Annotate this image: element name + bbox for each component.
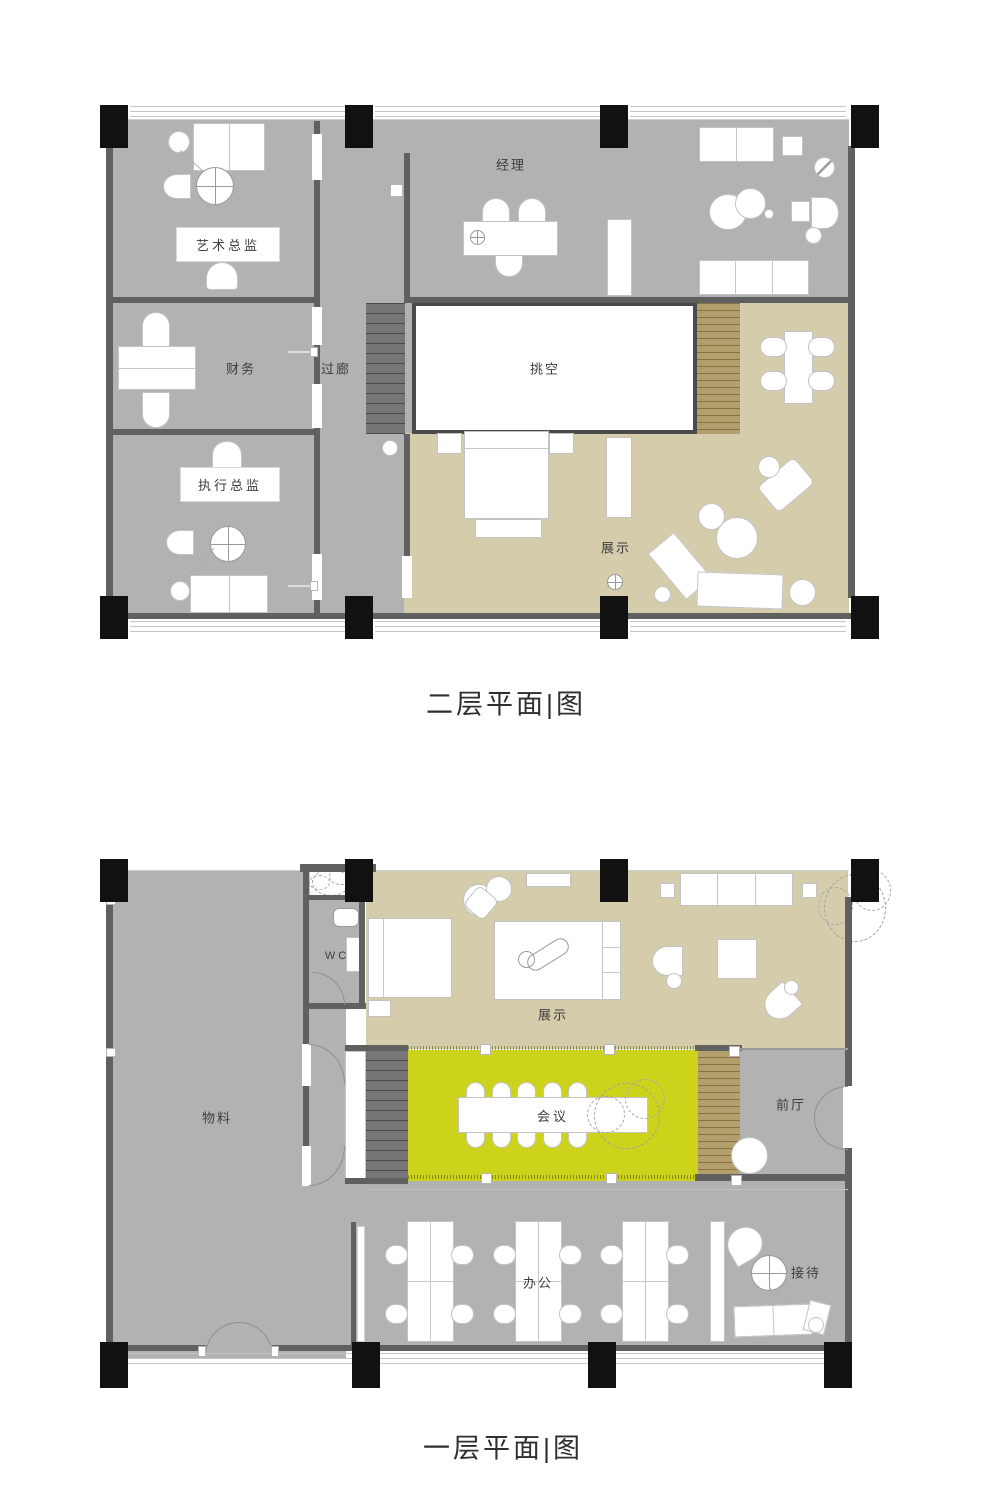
column (345, 859, 373, 902)
bench (526, 873, 571, 887)
stool (784, 980, 799, 995)
side-table (660, 883, 675, 898)
floor-plan-sheet: 艺术总监 财务 过廊 经理 挑空 执行总监 展示 二层平面|图 (0, 0, 1000, 1500)
room-label-front-hall: 前厅 (776, 1095, 806, 1114)
wall-segment (345, 1045, 408, 1051)
chair (451, 1304, 474, 1324)
chair (559, 1304, 582, 1324)
chair (493, 1304, 516, 1324)
wall-marker (606, 1173, 617, 1184)
wall-marker (729, 1046, 740, 1057)
chair (600, 1304, 623, 1324)
sofa (733, 1304, 812, 1338)
front-hall-bottom-wall (742, 1174, 848, 1181)
floor1-title: 一层平面|图 (423, 1427, 583, 1466)
column (600, 859, 628, 902)
front-hall-top-line (740, 1048, 848, 1050)
workstation-desk (407, 1221, 454, 1342)
stair-landing (345, 1051, 366, 1180)
square-table (717, 939, 757, 979)
room-label-reception: 接待 (791, 1263, 821, 1282)
column (100, 859, 128, 902)
door-jamb (198, 1346, 206, 1357)
plant-icon (594, 1083, 660, 1149)
sofa (680, 873, 793, 906)
workstation-desk (622, 1221, 669, 1342)
round-table (731, 1137, 768, 1174)
wall-marker (106, 1048, 116, 1057)
side-table (802, 883, 817, 898)
divider-shelf (710, 1221, 725, 1342)
column (824, 1342, 852, 1388)
door-leaf (357, 1226, 365, 1342)
floor1-stair-dark (366, 1050, 408, 1181)
wall-marker (481, 1173, 492, 1184)
stool (808, 1317, 824, 1333)
column (588, 1342, 616, 1388)
chair (559, 1245, 582, 1265)
stool (666, 973, 682, 989)
column (100, 1342, 128, 1388)
shelf (602, 921, 621, 1000)
mannequin-head (518, 951, 535, 968)
floor1-plan: 会议 (0, 0, 1000, 1500)
chair (600, 1245, 623, 1265)
room-label-office: 办公 (523, 1273, 553, 1292)
office-wall (351, 1222, 356, 1346)
wall-marker (480, 1044, 491, 1055)
chair (385, 1304, 408, 1324)
chair (493, 1245, 516, 1265)
column (352, 1342, 380, 1388)
door-jamb (271, 1346, 279, 1357)
wall-marker (604, 1044, 615, 1055)
wc-wall (359, 897, 365, 1009)
hatch-strip (408, 1175, 698, 1179)
nightstand (368, 1000, 391, 1017)
materials-wall (303, 871, 309, 1183)
wall-marker (731, 1175, 742, 1186)
armchair (652, 946, 683, 976)
chair (666, 1304, 689, 1324)
round-table-crosshair (751, 1255, 787, 1291)
room-label-wc: WC (325, 950, 349, 962)
column (851, 859, 879, 902)
floor1-top-edge-line (112, 870, 849, 871)
chair (385, 1245, 408, 1265)
toilet (333, 908, 359, 927)
chair (451, 1245, 474, 1265)
room-label-materials: 物料 (202, 1108, 232, 1127)
wall-segment (345, 1178, 408, 1184)
chair (666, 1245, 689, 1265)
room-label-meeting: 会议 (537, 1106, 569, 1125)
left-wall (106, 893, 113, 1348)
office-top-line (368, 1189, 848, 1190)
room-label-display: 展示 (538, 1005, 568, 1024)
hatch-strip (408, 1046, 698, 1050)
bed (368, 918, 452, 998)
